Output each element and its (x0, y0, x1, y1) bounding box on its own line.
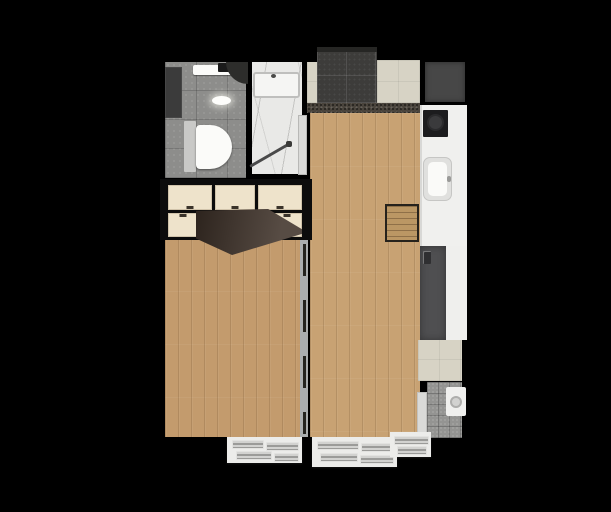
utility-door (417, 392, 427, 437)
louver-bar (236, 451, 272, 460)
louver-bar (266, 442, 299, 451)
side-shelf (165, 67, 182, 118)
louver-bar (320, 453, 358, 462)
toilet-cistern (184, 121, 196, 172)
kitchen-sink-basin (428, 162, 447, 196)
kitchen-sink-faucet (447, 176, 451, 182)
bathtub-faucet (271, 74, 276, 78)
louver-bar (394, 436, 429, 445)
louver-bar (232, 440, 264, 449)
lower-cabinet (446, 246, 467, 340)
entry-floor-beige-right (377, 60, 420, 103)
entry-threshold-mat (307, 103, 420, 113)
washing-machine-door (450, 396, 462, 408)
service-shaft (425, 62, 465, 102)
dining-table (385, 204, 419, 242)
bathtub (253, 72, 300, 98)
floor-plan-canvas (0, 0, 611, 512)
wardrobe-door-2 (215, 185, 255, 210)
louver-bar (397, 446, 427, 455)
bedroom-floor (165, 238, 303, 437)
living-room-floor (310, 113, 420, 437)
sliding-partition-panels (303, 244, 306, 434)
cooktop-burner (427, 114, 444, 131)
kitchen-lower-beige-floor (418, 340, 462, 381)
entry-floor-dark-tiles (317, 47, 377, 103)
wardrobe-door-3 (258, 185, 302, 210)
window-vent-1 (227, 437, 302, 463)
louver-bar (317, 441, 359, 450)
refrigerator-handle (423, 251, 431, 264)
window-vent-3 (390, 432, 431, 457)
louver-bar (274, 453, 299, 462)
window-vent-2 (312, 437, 397, 467)
louver-bar (360, 455, 394, 464)
entry-floor-beige-left (307, 62, 317, 103)
wardrobe-door-small-left (168, 213, 198, 237)
entry-door-line (317, 47, 377, 52)
bathroom-door (298, 115, 307, 175)
wardrobe-door-1 (168, 185, 212, 210)
shower-screen-knob (286, 141, 292, 147)
ceiling-light (212, 96, 231, 105)
